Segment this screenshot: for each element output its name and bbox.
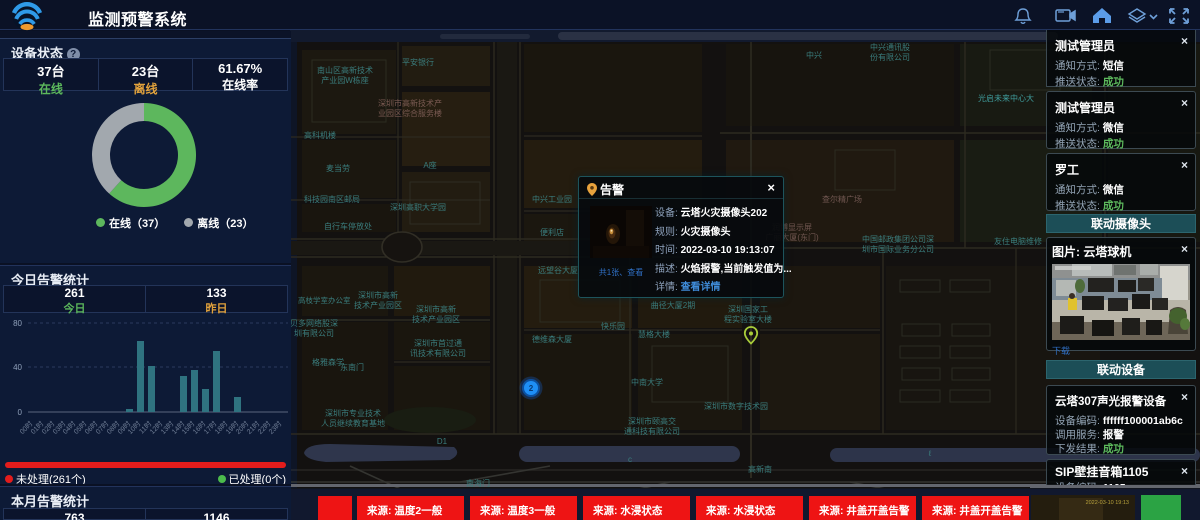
svg-text:南海门: 南海门 — [466, 478, 490, 488]
svg-text:便利店: 便利店 — [540, 227, 564, 237]
svg-text:深圳国家工: 深圳国家工 — [728, 304, 768, 314]
svg-text:业园区综合服务楼: 业园区综合服务楼 — [378, 108, 442, 118]
svg-text:南山区高新技术: 南山区高新技术 — [317, 65, 373, 75]
svg-text:中兴通讯股: 中兴通讯股 — [870, 42, 910, 52]
svg-text:2: 2 — [529, 384, 534, 393]
svg-text:通科技有限公司: 通科技有限公司 — [624, 426, 680, 436]
svg-text:技术产业园区: 技术产业园区 — [354, 300, 402, 310]
svg-text:贝多网络股深: 贝多网络股深 — [290, 318, 338, 328]
svg-text:麦当劳: 麦当劳 — [326, 163, 350, 173]
svg-text:c: c — [628, 455, 632, 464]
svg-text:份有限公司: 份有限公司 — [870, 52, 910, 62]
svg-text:深圳市高新技术产: 深圳市高新技术产 — [378, 98, 442, 108]
svg-text:深圳市数字技术园: 深圳市数字技术园 — [704, 401, 768, 411]
svg-text:慧格大楼: 慧格大楼 — [638, 329, 670, 339]
svg-text:德维森大厦: 德维森大厦 — [532, 334, 572, 344]
svg-text:深圳市高新: 深圳市高新 — [416, 304, 456, 314]
svg-text:讯技术有限公司: 讯技术有限公司 — [410, 348, 466, 358]
svg-text:产业园W栋座: 产业园W栋座 — [321, 75, 369, 85]
svg-text:A座: A座 — [423, 160, 436, 170]
svg-text:40: 40 — [13, 363, 22, 372]
svg-text:深圳高职大学园: 深圳高职大学园 — [390, 202, 446, 212]
svg-text:高新南: 高新南 — [748, 464, 772, 474]
svg-text:2022-03-10 19:13: 2022-03-10 19:13 — [1086, 500, 1129, 506]
svg-text:中兴: 中兴 — [806, 50, 822, 60]
svg-text:中国邮政集团公司深: 中国邮政集团公司深 — [862, 234, 934, 244]
svg-text:80: 80 — [13, 319, 22, 328]
svg-text:ℓ: ℓ — [928, 449, 932, 458]
svg-text:远望谷大厦: 远望谷大厦 — [538, 265, 578, 275]
svg-text:0: 0 — [18, 408, 23, 417]
svg-text:圳有限公司: 圳有限公司 — [294, 328, 334, 338]
svg-text:曲径大厦2期: 曲径大厦2期 — [651, 300, 695, 310]
svg-text:人员继续教育基地: 人员继续教育基地 — [321, 418, 385, 428]
svg-text:快乐园: 快乐园 — [601, 321, 625, 331]
svg-text:深圳市首过通: 深圳市首过通 — [414, 338, 462, 348]
svg-text:技术产业园区: 技术产业园区 — [412, 314, 460, 324]
svg-text:D1: D1 — [437, 437, 448, 446]
svg-text:圳市国际业务分公司: 圳市国际业务分公司 — [862, 244, 934, 254]
svg-text:程实验室大楼: 程实验室大楼 — [724, 314, 772, 324]
svg-text:高科机楼: 高科机楼 — [304, 130, 336, 140]
svg-text:东南门: 东南门 — [340, 362, 364, 372]
svg-text:自行车停放处: 自行车停放处 — [324, 221, 372, 231]
svg-text:深圳市专业技术: 深圳市专业技术 — [325, 408, 381, 418]
svg-text:查尔精广场: 查尔精广场 — [822, 194, 862, 204]
svg-text:中兴工业园: 中兴工业园 — [532, 194, 572, 204]
svg-text:平安银行: 平安银行 — [402, 57, 434, 67]
svg-text:中南大学: 中南大学 — [631, 377, 663, 387]
svg-text:深圳市颐高交: 深圳市颐高交 — [628, 416, 676, 426]
svg-text:高枝学室办公室: 高枝学室办公室 — [298, 295, 351, 305]
svg-text:友住电脑维修: 友住电脑维修 — [994, 236, 1042, 246]
svg-text:深圳市高新: 深圳市高新 — [358, 290, 398, 300]
svg-text:光启未来中心大: 光启未来中心大 — [978, 93, 1034, 103]
svg-text:科技园南区邮局: 科技园南区邮局 — [304, 194, 360, 204]
